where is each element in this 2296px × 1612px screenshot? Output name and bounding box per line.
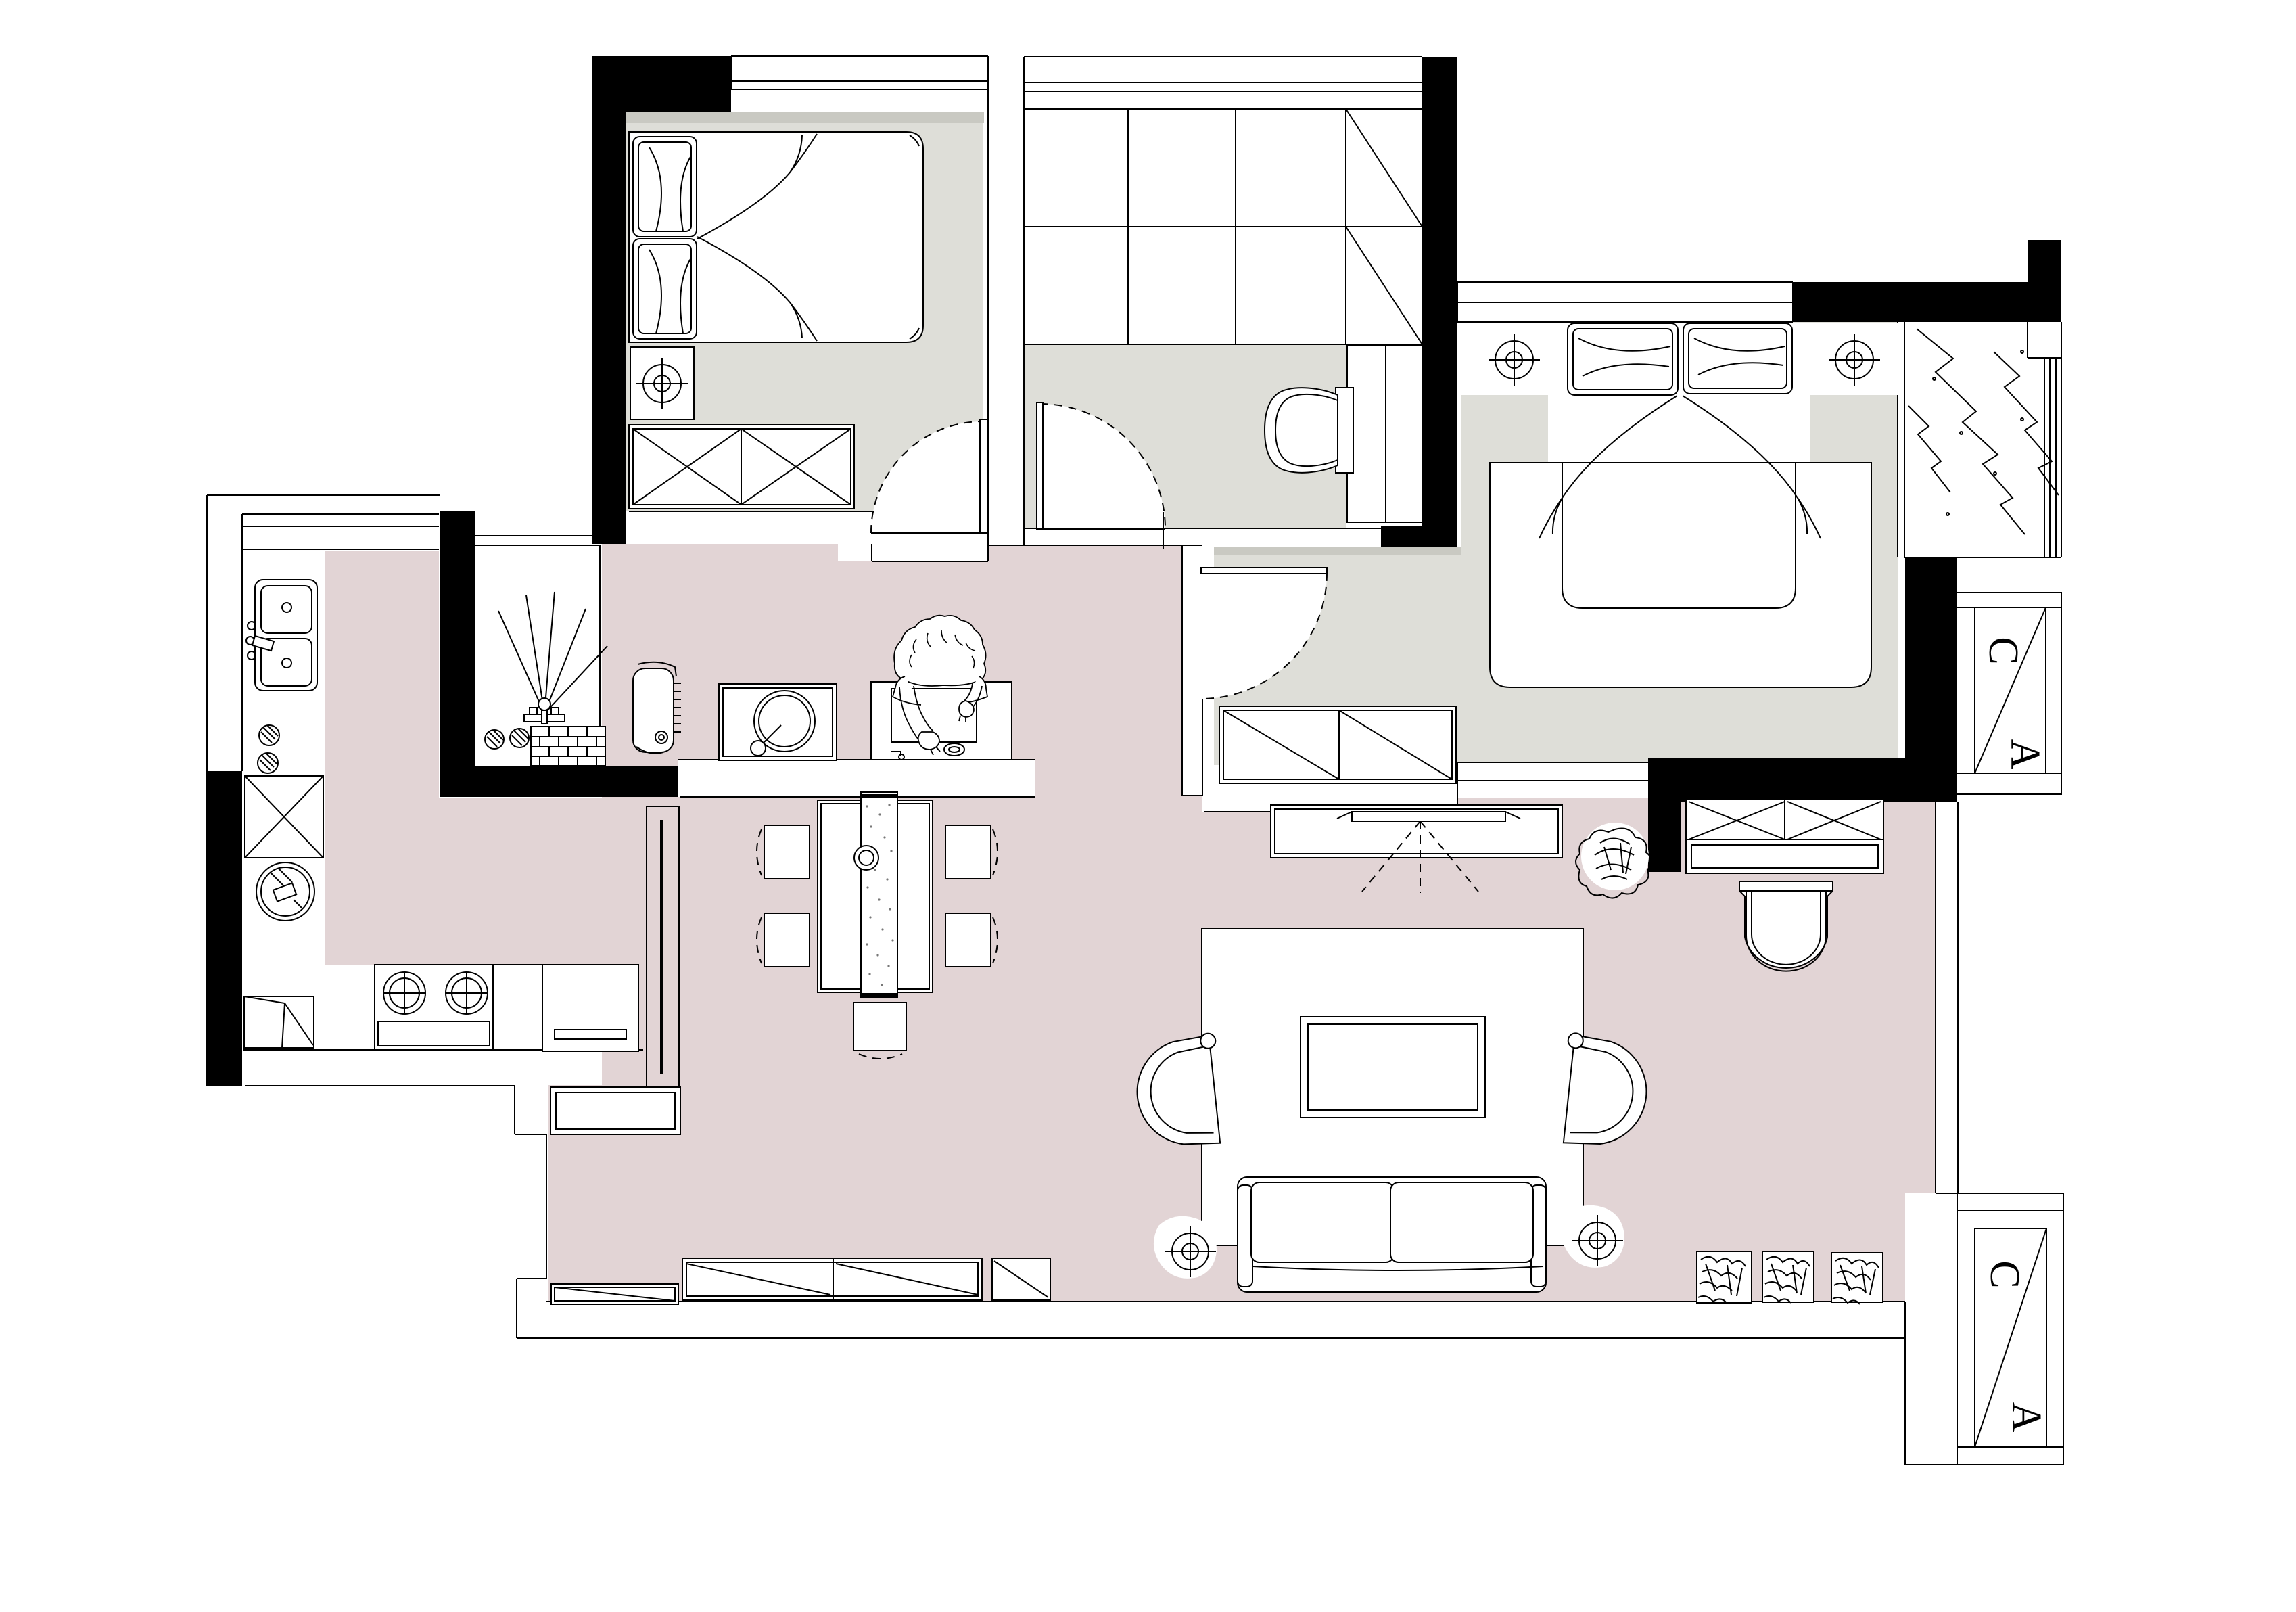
svg-text:C: C: [1980, 637, 2026, 664]
svg-text:C: C: [1982, 1260, 2028, 1288]
svg-text:A: A: [2003, 1402, 2049, 1433]
svg-text:A: A: [2002, 739, 2048, 770]
